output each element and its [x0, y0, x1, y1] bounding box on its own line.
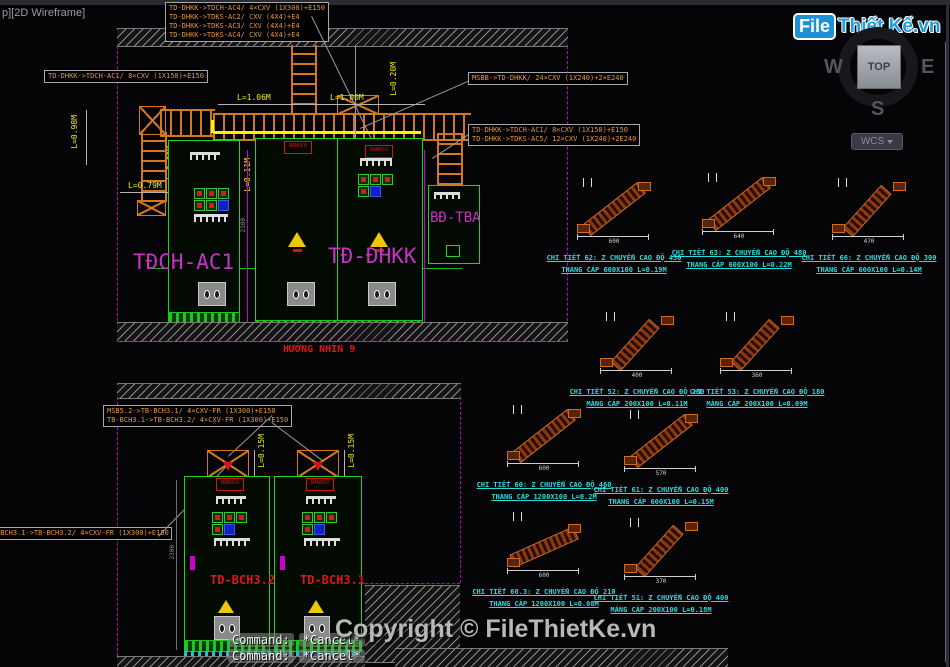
platform-line: [360, 583, 460, 584]
cable-mark: [313, 462, 323, 471]
breaker-cluster: [302, 512, 337, 535]
nanoco-sticker: NANOCO: [365, 145, 393, 158]
viewcube-east[interactable]: E: [921, 56, 934, 79]
dim-label: L=0.98M: [70, 115, 79, 149]
terminal-comb: [216, 496, 246, 504]
viewcube-top-face[interactable]: TOP: [857, 45, 901, 89]
viewcube-west[interactable]: W: [824, 56, 843, 79]
dim-line: [176, 480, 177, 650]
cable-tray-main: [213, 113, 425, 141]
right-edge-line: [945, 42, 946, 662]
detail-53: 360 CHI TIẾT 53: Z CHUYỂN CAO ĐỘ 180 MÁN…: [718, 312, 796, 382]
tray-elbow: [137, 200, 166, 216]
detail-52: 400 CHI TIẾT 52: Z CHUYỂN CAO ĐỘ 230 MÁN…: [598, 312, 676, 382]
detail-base-dim: 400: [598, 372, 676, 379]
cabinet-td-dhkk: [255, 138, 423, 332]
detail-63: 640 CHI TIẾT 63: Z CHUYỂN CAO ĐỘ 480 THA…: [700, 173, 778, 243]
door-handle: [287, 282, 315, 306]
detail-62: 600 CHI TIẾT 62: Z CHUYỂN CAO ĐỘ 430 THA…: [575, 178, 653, 248]
viewport-controls-label[interactable]: p][2D Wireframe]: [2, 7, 85, 19]
detail-base-dim: 600: [575, 238, 653, 245]
extension-line: [424, 150, 425, 333]
command-line[interactable]: Command: *Cancel*: [228, 649, 365, 663]
side-handle: [280, 556, 285, 570]
detail-60: 600 CHI TIẾT 60: Z CHUYỂN CAO ĐỘ 460 THA…: [505, 405, 583, 475]
cabinet-label-td-bch31: TD-BCH3.1: [300, 573, 365, 587]
door-handle: [446, 245, 460, 257]
chevron-down-icon: [887, 140, 893, 144]
highlighted-cable-drop: [211, 120, 214, 133]
viewcube-south[interactable]: S: [871, 98, 884, 121]
nanoco-sticker: NANOCO: [306, 478, 334, 491]
detail-base-dim: 370: [622, 578, 700, 585]
detail-base-dim: 570: [622, 470, 700, 477]
floor-hatch-3: [395, 648, 728, 667]
dim-label: L=0.15M: [257, 434, 266, 468]
detail-60-3: 600 CHI TIẾT 60.3: Z CHUYỂN CAO ĐỘ 210 T…: [505, 512, 583, 582]
detail-base-dim: 600: [505, 465, 583, 472]
side-handle: [190, 556, 195, 570]
dim-line: [86, 110, 87, 165]
cabinet-label-bd-tba: BĐ-TBA: [430, 210, 481, 226]
detail-subtitle: THANG CÁP 600X100 L=0.14M: [784, 264, 950, 276]
terminal-comb: [214, 538, 250, 546]
highlighted-cable-run: [213, 131, 421, 134]
terminal-comb: [360, 158, 392, 166]
door-divider: [337, 139, 338, 329]
command-prompt: Command:: [228, 633, 294, 647]
detail-title: CHI TIẾT 51: Z CHUYỂN CAO ĐỘ 400: [576, 592, 746, 604]
boundary-left-1: [117, 46, 118, 341]
command-value: *Cancel*: [299, 649, 365, 663]
titlebar-strip: [0, 0, 950, 5]
warning-triangle-icon: [218, 600, 234, 613]
cabinet-label-td-bch32: TD-BCH3.2: [210, 573, 275, 587]
boundary-right-1: [567, 46, 568, 341]
terminal-comb: [190, 152, 220, 160]
dim-label-small: 2300: [169, 545, 176, 559]
detail-base-dim: 640: [700, 233, 778, 240]
cable-tray-left: [160, 109, 215, 137]
warning-bar: [293, 249, 302, 252]
copyright-watermark: Copyright © FileThietKe.vn: [335, 615, 656, 644]
detail-base-dim: 470: [830, 238, 908, 245]
terminal-comb: [194, 214, 228, 222]
cabinet-label-td-dhkk: TĐ-ĐHKK: [328, 244, 417, 268]
terminal-comb: [306, 496, 336, 504]
door-handle: [368, 282, 396, 306]
dim-line: [218, 104, 425, 105]
wcs-label: WCS: [861, 136, 884, 147]
nanoco-sticker: NANOCO: [216, 478, 244, 491]
detail-base-dim: 600: [505, 572, 583, 579]
dim-label: L=0.15M: [347, 434, 356, 468]
warning-triangle-icon: [308, 600, 324, 613]
callout-top-feeders: TD-DHKK->TDCH-AC4/ 4×CXV (1X300)+E150 TD…: [165, 2, 329, 42]
door-handle: [198, 282, 226, 306]
cabinet-label-tdch-ac1: TĐCH-AC1: [133, 250, 234, 274]
terminal-comb: [304, 538, 340, 546]
callout-mid-feeders: TD-DHKK->TDCH-AC1/ 8×CXV (1X150)+E150 TD…: [468, 124, 640, 146]
floor-hatch-1: [117, 322, 568, 342]
nanoco-sticker: NANOCO: [284, 141, 312, 154]
dim-line: [254, 450, 255, 478]
cable-mark: [223, 462, 233, 471]
command-prompt: Command:: [228, 649, 294, 663]
callout-tdch-ac1: TD-DHKK->TDCH-AC1/ 8×CXV (1X150)+E150: [44, 70, 208, 83]
detail-title: CHI TIẾT 66: Z CHUYỂN CAO ĐỘ 300: [784, 252, 950, 264]
dim-label: L=0.20M: [389, 62, 398, 96]
warning-triangle-icon: [288, 232, 306, 247]
cad-viewport: p][2D Wireframe] File Thiết Kế.vn W E S …: [0, 0, 950, 667]
ceiling-hatch-2: [117, 383, 461, 399]
dim-label-small: 2300: [240, 218, 247, 232]
breaker-cluster: [194, 188, 229, 211]
dim-label: L=1.00M: [330, 93, 364, 102]
detail-51: 370 CHI TIẾT 51: Z CHUYỂN CAO ĐỘ 400 MÁN…: [622, 518, 700, 588]
detail-66: 470 CHI TIẾT 66: Z CHUYỂN CAO ĐỘ 300 THA…: [830, 178, 908, 248]
dim-label: L=0.79M: [128, 181, 162, 190]
extension-line: [247, 150, 248, 333]
logo-file-icon: File: [793, 13, 836, 40]
dim-label: L=1.06M: [237, 93, 271, 102]
right-panel-divider: [946, 0, 949, 667]
detail-title: CHI TIẾT 53: Z CHUYỂN CAO ĐỘ 180: [672, 386, 842, 398]
boundary-bottom-1: [117, 341, 568, 342]
detail-title: CHI TIẾT 61: Z CHUYỂN CAO ĐỘ 400: [576, 484, 746, 496]
breaker-cluster: [358, 174, 393, 197]
detail-subtitle: MÁNG CÁP 200X100 L=0.09M: [672, 398, 842, 410]
view-direction-label: HƯỚNG NHÌN 9: [283, 344, 355, 355]
terminal-comb: [434, 192, 460, 199]
callout-bch-left: -BCH3.1->TB-BCH3.2/ 4×CXV-FR (1X300)+E15…: [0, 527, 172, 540]
breaker-cluster: [212, 512, 247, 535]
dim-line: [344, 450, 345, 478]
wcs-dropdown[interactable]: WCS: [851, 133, 903, 150]
detail-61: 570 CHI TIẾT 61: Z CHUYỂN CAO ĐỘ 400 THA…: [622, 410, 700, 480]
detail-base-dim: 360: [718, 372, 796, 379]
callout-msbb: MSBB->TD-DHKK/ 24×CXV (1X240)+2×E240: [468, 72, 628, 85]
detail-subtitle: THANG CÁP 600X100 L=0.15M: [576, 496, 746, 508]
